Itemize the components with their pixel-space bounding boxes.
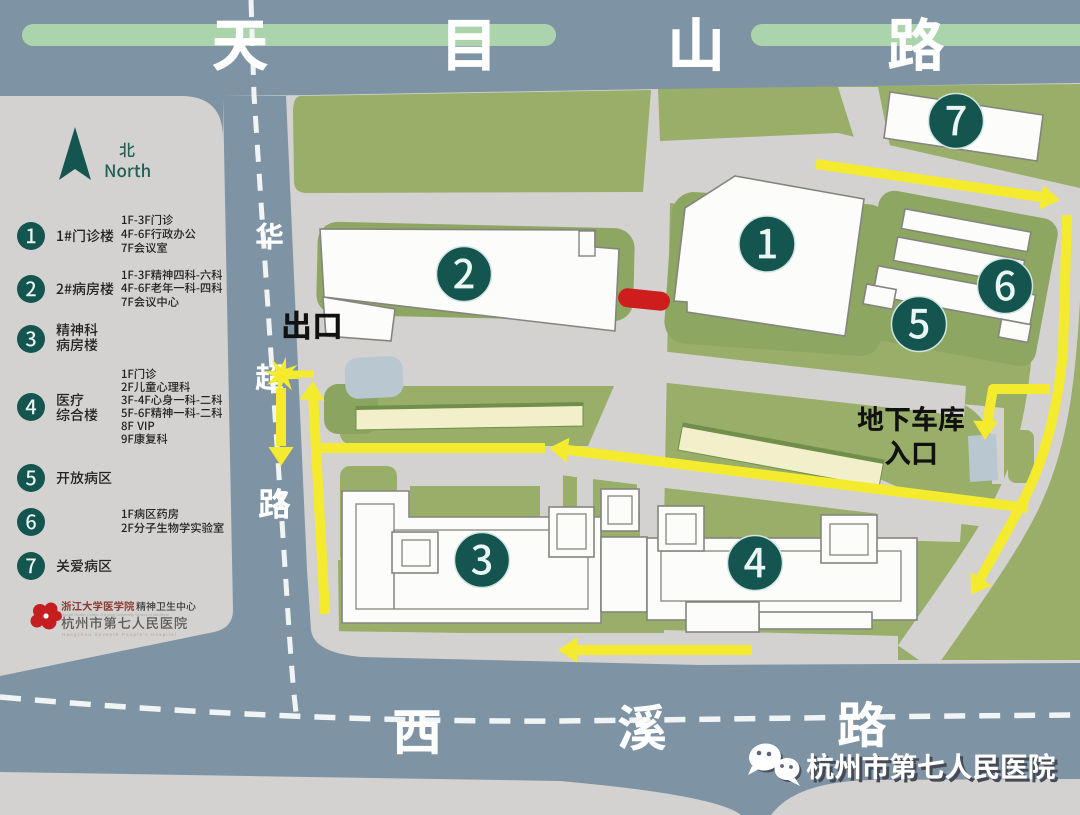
- svg-text:Mental Health Center Zhejiang: Mental Health Center Zhejiang University…: [61, 612, 170, 617]
- svg-text:Hangzhou Seventh People's H: Hangzhou Seventh People's Hospital: [62, 632, 177, 637]
